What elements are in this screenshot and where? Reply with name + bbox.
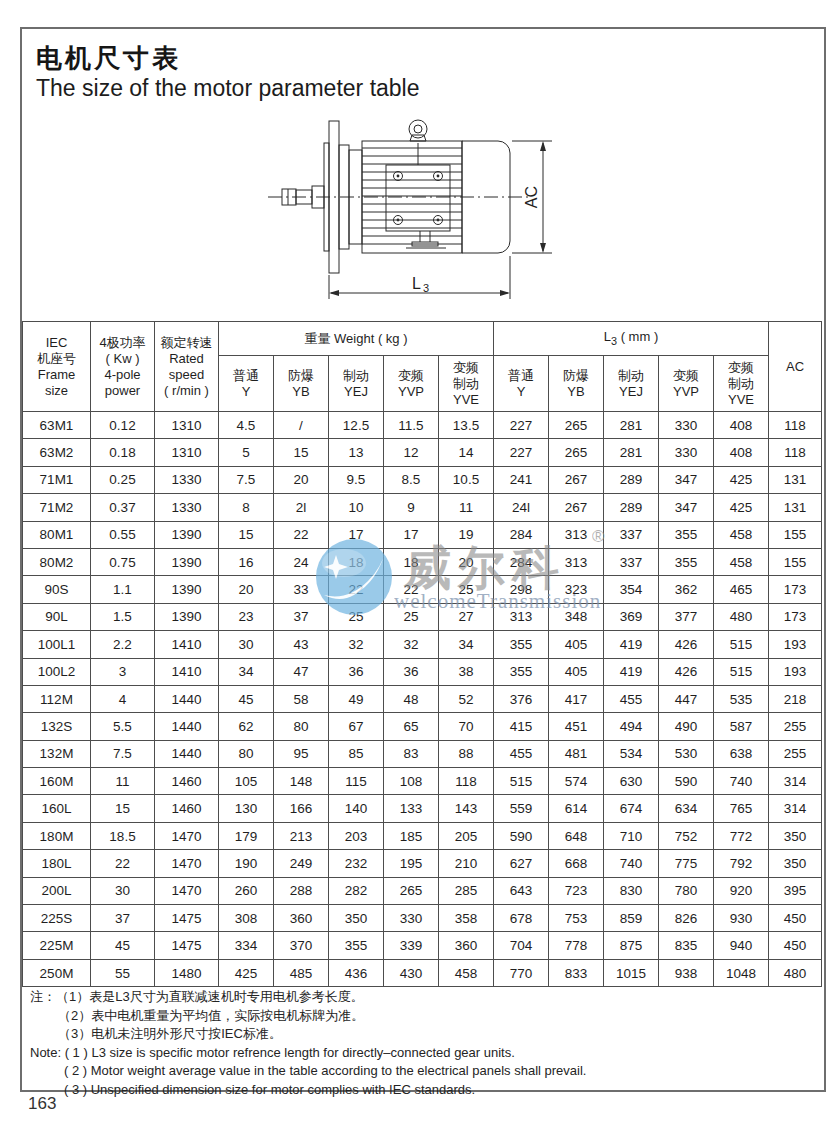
value-cell: 875 <box>604 932 659 959</box>
value-cell: 85 <box>329 740 384 767</box>
value-cell: 1390 <box>155 521 219 548</box>
value-cell: 58 <box>274 685 329 712</box>
frame-size-cell: 225M <box>23 932 91 959</box>
page-title-english: The size of the motor parameter table <box>36 75 420 102</box>
value-cell: 284 <box>494 521 549 548</box>
value-cell: 590 <box>494 822 549 849</box>
value-cell: 347 <box>659 466 714 493</box>
l3-dim-label-main: L <box>412 275 421 292</box>
notes-english: Note: ( 1 ) L3 size is specific motor re… <box>30 1044 810 1100</box>
value-cell: 88 <box>439 740 494 767</box>
value-cell: 1480 <box>155 959 219 986</box>
value-cell: 1470 <box>155 822 219 849</box>
weight-sub-header-yej: 制动 YEJ <box>329 356 384 412</box>
value-cell: 370 <box>274 932 329 959</box>
value-cell: 350 <box>769 850 822 877</box>
value-cell: 308 <box>219 905 274 932</box>
value-cell: 281 <box>604 439 659 466</box>
value-cell: 355 <box>659 548 714 575</box>
value-cell: 105 <box>219 768 274 795</box>
value-cell: 314 <box>769 768 822 795</box>
value-cell: 355 <box>494 631 549 658</box>
value-cell: 13.5 <box>439 412 494 439</box>
value-cell: 20 <box>439 548 494 575</box>
value-cell: 34 <box>219 658 274 685</box>
value-cell: 1330 <box>155 494 219 521</box>
value-cell: 37 <box>91 905 155 932</box>
value-cell: 1015 <box>604 959 659 986</box>
value-cell: 358 <box>439 905 494 932</box>
value-cell: / <box>274 412 329 439</box>
table-row: 80M10.5513901522171719284313337355458155 <box>23 521 822 548</box>
value-cell: 5.5 <box>91 713 155 740</box>
note-zh-line: 注：（1）表是L3尺寸为直联减速机时专用电机参考长度。 <box>30 988 810 1007</box>
value-cell: 265 <box>549 412 604 439</box>
value-cell: 15 <box>91 795 155 822</box>
value-cell: 1470 <box>155 877 219 904</box>
value-cell: 131 <box>769 494 822 521</box>
value-cell: 940 <box>714 932 769 959</box>
value-cell: 80 <box>219 740 274 767</box>
value-cell: 405 <box>549 658 604 685</box>
value-cell: 1330 <box>155 466 219 493</box>
table-row: 225S371475308360350330358678753859826930… <box>23 905 822 932</box>
value-cell: 337 <box>604 521 659 548</box>
value-cell: 3 <box>91 658 155 685</box>
frame-size-cell: 71M2 <box>23 494 91 521</box>
value-cell: 65 <box>384 713 439 740</box>
notes-section: 注：（1）表是L3尺寸为直联减速机时专用电机参考长度。（2）表中电机重量为平均值… <box>30 988 810 1099</box>
value-cell: 22 <box>384 576 439 603</box>
value-cell: 16 <box>219 548 274 575</box>
value-cell: 360 <box>274 905 329 932</box>
frame-size-cell: 100L2 <box>23 658 91 685</box>
frame-size-cell: 63M1 <box>23 412 91 439</box>
value-cell: 1390 <box>155 576 219 603</box>
value-cell: 95 <box>274 740 329 767</box>
value-cell: 49 <box>329 685 384 712</box>
value-cell: 313 <box>494 603 549 630</box>
table-row: 180M18.514701792132031852055906487107527… <box>23 822 822 849</box>
value-cell: 34 <box>439 631 494 658</box>
value-cell: 369 <box>604 603 659 630</box>
terminal-mount-plate <box>386 165 450 231</box>
value-cell: 1048 <box>714 959 769 986</box>
value-cell: 25 <box>439 576 494 603</box>
value-cell: 515 <box>494 768 549 795</box>
value-cell: 559 <box>494 795 549 822</box>
value-cell: 36 <box>329 658 384 685</box>
value-cell: 515 <box>714 631 769 658</box>
value-cell: 339 <box>384 932 439 959</box>
value-cell: 210 <box>439 850 494 877</box>
header-frame-size: IEC 机座号 Frame size <box>23 322 91 412</box>
value-cell: 455 <box>494 740 549 767</box>
value-cell: 20 <box>274 466 329 493</box>
value-cell: 83 <box>384 740 439 767</box>
value-cell: 55 <box>91 959 155 986</box>
value-cell: 131 <box>769 466 822 493</box>
value-cell: 1390 <box>155 603 219 630</box>
l3-dim-label-sub: 3 <box>423 282 429 294</box>
value-cell: 826 <box>659 905 714 932</box>
value-cell: 355 <box>494 658 549 685</box>
value-cell: 27 <box>439 603 494 630</box>
value-cell: 265 <box>549 439 604 466</box>
table-row: 90S1.113902033222225298323354362465173 <box>23 576 822 603</box>
value-cell: 674 <box>604 795 659 822</box>
value-cell: 313 <box>549 548 604 575</box>
value-cell: 360 <box>439 932 494 959</box>
value-cell: 15 <box>274 439 329 466</box>
frame-size-cell: 112M <box>23 685 91 712</box>
value-cell: 80 <box>274 713 329 740</box>
value-cell: 155 <box>769 521 822 548</box>
table-row: 180L221470190249232195210627668740775792… <box>23 850 822 877</box>
value-cell: 289 <box>604 494 659 521</box>
value-cell: 323 <box>549 576 604 603</box>
value-cell: 0.25 <box>91 466 155 493</box>
value-cell: 678 <box>494 905 549 932</box>
table-row: 200L301470260288282265285643723830780920… <box>23 877 822 904</box>
value-cell: 614 <box>549 795 604 822</box>
value-cell: 481 <box>549 740 604 767</box>
value-cell: 140 <box>329 795 384 822</box>
value-cell: 436 <box>329 959 384 986</box>
value-cell: 1470 <box>155 850 219 877</box>
value-cell: 288 <box>274 877 329 904</box>
value-cell: 627 <box>494 850 549 877</box>
value-cell: 62 <box>219 713 274 740</box>
value-cell: 465 <box>714 576 769 603</box>
frame-size-cell: 160L <box>23 795 91 822</box>
value-cell: 334 <box>219 932 274 959</box>
lifting-eye <box>409 120 427 141</box>
value-cell: 15 <box>219 521 274 548</box>
value-cell: 4 <box>91 685 155 712</box>
value-cell: 190 <box>219 850 274 877</box>
motor-outline-svg: AC L 3 <box>254 109 599 319</box>
value-cell: 52 <box>439 685 494 712</box>
table-row: 100L2314103447363638355405419426515193 <box>23 658 822 685</box>
table-body: 63M10.1213104.5/12.511.513.5227265281330… <box>23 412 822 987</box>
value-cell: 2.2 <box>91 631 155 658</box>
value-cell: 634 <box>659 795 714 822</box>
value-cell: 590 <box>659 768 714 795</box>
value-cell: 415 <box>494 713 549 740</box>
l3-sub-header-yve: 变频 制动 YVE <box>714 356 769 412</box>
table-row: 225M451475334370355339360704778875835940… <box>23 932 822 959</box>
value-cell: 241 <box>494 466 549 493</box>
frame-size-cell: 132S <box>23 713 91 740</box>
value-cell: 10 <box>329 494 384 521</box>
value-cell: 45 <box>91 932 155 959</box>
table-row: 160L151460130166140133143559614674634765… <box>23 795 822 822</box>
value-cell: 920 <box>714 877 769 904</box>
value-cell: 70 <box>439 713 494 740</box>
value-cell: 265 <box>384 877 439 904</box>
value-cell: 227 <box>494 412 549 439</box>
frame-size-cell: 180L <box>23 850 91 877</box>
value-cell: 350 <box>769 822 822 849</box>
value-cell: 770 <box>494 959 549 986</box>
ac-dim-label: AC <box>523 186 540 208</box>
value-cell: 859 <box>604 905 659 932</box>
value-cell: 4.5 <box>219 412 274 439</box>
value-cell: 284 <box>494 548 549 575</box>
value-cell: 792 <box>714 850 769 877</box>
value-cell: 166 <box>274 795 329 822</box>
value-cell: 13 <box>329 439 384 466</box>
value-cell: 143 <box>439 795 494 822</box>
value-cell: 37 <box>274 603 329 630</box>
value-cell: 530 <box>659 740 714 767</box>
value-cell: 218 <box>769 685 822 712</box>
table-header: IEC 机座号 Frame size 4极功率 ( Kw ) 4-pole po… <box>23 322 822 412</box>
table-row: 80M20.7513901624181820284313337355458155 <box>23 548 822 575</box>
frame-size-cell: 100L1 <box>23 631 91 658</box>
value-cell: 5 <box>219 439 274 466</box>
frame-size-cell: 63M2 <box>23 439 91 466</box>
value-cell: 833 <box>549 959 604 986</box>
note-en-line: ( 2 ) Motor weight average value in the … <box>30 1062 810 1081</box>
value-cell: 155 <box>769 548 822 575</box>
value-cell: 33 <box>274 576 329 603</box>
weight-sub-header-yvp: 变频 YVP <box>384 356 439 412</box>
value-cell: 267 <box>549 466 604 493</box>
value-cell: 337 <box>604 548 659 575</box>
notes-chinese: 注：（1）表是L3尺寸为直联减速机时专用电机参考长度。（2）表中电机重量为平均值… <box>30 988 810 1044</box>
value-cell: 193 <box>769 658 822 685</box>
value-cell: 405 <box>549 631 604 658</box>
value-cell: 108 <box>384 768 439 795</box>
motor-parameter-table: IEC 机座号 Frame size 4极功率 ( Kw ) 4-pole po… <box>22 321 822 987</box>
frame-size-cell: 80M1 <box>23 521 91 548</box>
table-row: 71M10.2513307.5209.58.510.52412672893474… <box>23 466 822 493</box>
value-cell: 354 <box>604 576 659 603</box>
value-cell: 1475 <box>155 932 219 959</box>
value-cell: 1.5 <box>91 603 155 630</box>
value-cell: 1460 <box>155 795 219 822</box>
value-cell: 285 <box>439 877 494 904</box>
value-cell: 313 <box>549 521 604 548</box>
value-cell: 447 <box>659 685 714 712</box>
value-cell: 260 <box>219 877 274 904</box>
value-cell: 115 <box>329 768 384 795</box>
value-cell: 281 <box>604 412 659 439</box>
page-title-chinese: 电机尺寸表 <box>36 41 181 76</box>
value-cell: 480 <box>769 959 822 986</box>
header-weight-group: 重量 Weight ( kg ) <box>219 322 494 356</box>
dimension-l3: L 3 <box>329 256 510 299</box>
value-cell: 430 <box>384 959 439 986</box>
value-cell: 515 <box>714 658 769 685</box>
value-cell: 24 <box>274 548 329 575</box>
value-cell: 185 <box>384 822 439 849</box>
table-row: 63M10.1213104.5/12.511.513.5227265281330… <box>23 412 822 439</box>
header-l3-group: L3 ( mm ) <box>494 322 769 356</box>
value-cell: 11.5 <box>384 412 439 439</box>
value-cell: 330 <box>659 412 714 439</box>
value-cell: 195 <box>384 850 439 877</box>
value-cell: 485 <box>274 959 329 986</box>
value-cell: 11 <box>91 768 155 795</box>
value-cell: 330 <box>659 439 714 466</box>
value-cell: 780 <box>659 877 714 904</box>
value-cell: 118 <box>769 439 822 466</box>
table-row: 112M414404558494852376417455447535218 <box>23 685 822 712</box>
frame-size-cell: 250M <box>23 959 91 986</box>
value-cell: 1440 <box>155 713 219 740</box>
value-cell: 255 <box>769 740 822 767</box>
value-cell: 2l <box>274 494 329 521</box>
value-cell: 179 <box>219 822 274 849</box>
value-cell: 14 <box>439 439 494 466</box>
weight-sub-header-yve: 变频 制动 YVE <box>439 356 494 412</box>
frame-size-cell: 80M2 <box>23 548 91 575</box>
value-cell: 348 <box>549 603 604 630</box>
frame-size-cell: 180M <box>23 822 91 849</box>
value-cell: 417 <box>549 685 604 712</box>
value-cell: 376 <box>494 685 549 712</box>
note-en-line: ( 3 ) Unspecified dimension size for mot… <box>30 1081 810 1100</box>
value-cell: 118 <box>769 412 822 439</box>
value-cell: 30 <box>91 877 155 904</box>
value-cell: 1440 <box>155 685 219 712</box>
value-cell: 535 <box>714 685 769 712</box>
value-cell: 0.37 <box>91 494 155 521</box>
value-cell: 22 <box>329 576 384 603</box>
value-cell: 1410 <box>155 631 219 658</box>
value-cell: 1.1 <box>91 576 155 603</box>
frame-size-cell: 90L <box>23 603 91 630</box>
value-cell: 32 <box>329 631 384 658</box>
note-zh-line: （2）表中电机重量为平均值，实际按电机标牌为准。 <box>30 1007 810 1026</box>
value-cell: 426 <box>659 658 714 685</box>
value-cell: 347 <box>659 494 714 521</box>
value-cell: 419 <box>604 658 659 685</box>
weight-sub-header-y: 普通 Y <box>219 356 274 412</box>
value-cell: 12.5 <box>329 412 384 439</box>
value-cell: 630 <box>604 768 659 795</box>
value-cell: 450 <box>769 932 822 959</box>
value-cell: 47 <box>274 658 329 685</box>
value-cell: 18 <box>329 548 384 575</box>
value-cell: 130 <box>219 795 274 822</box>
l3-sub-header-yvp: 变频 YVP <box>659 356 714 412</box>
table-row: 160M111460105148115108118515574630590740… <box>23 768 822 795</box>
value-cell: 118 <box>439 768 494 795</box>
value-cell: 480 <box>714 603 769 630</box>
value-cell: 753 <box>549 905 604 932</box>
value-cell: 830 <box>604 877 659 904</box>
value-cell: 203 <box>329 822 384 849</box>
table-row: 132M7.514408095858388455481534530638255 <box>23 740 822 767</box>
value-cell: 173 <box>769 576 822 603</box>
motor-dimension-drawing: AC L 3 <box>254 109 599 319</box>
value-cell: 45 <box>219 685 274 712</box>
value-cell: 9 <box>384 494 439 521</box>
note-zh-line: （3）电机未注明外形尺寸按IEC标准。 <box>30 1025 810 1044</box>
value-cell: 1440 <box>155 740 219 767</box>
value-cell: 835 <box>659 932 714 959</box>
value-cell: 249 <box>274 850 329 877</box>
value-cell: 25 <box>329 603 384 630</box>
value-cell: 205 <box>439 822 494 849</box>
cooling-fins <box>362 148 462 244</box>
value-cell: 18.5 <box>91 822 155 849</box>
value-cell: 425 <box>714 466 769 493</box>
value-cell: 17 <box>329 521 384 548</box>
value-cell: 778 <box>549 932 604 959</box>
value-cell: 1460 <box>155 768 219 795</box>
value-cell: 1475 <box>155 905 219 932</box>
value-cell: 377 <box>659 603 714 630</box>
value-cell: 362 <box>659 576 714 603</box>
value-cell: 668 <box>549 850 604 877</box>
value-cell: 752 <box>659 822 714 849</box>
value-cell: 765 <box>714 795 769 822</box>
value-cell: 458 <box>439 959 494 986</box>
value-cell: 451 <box>549 713 604 740</box>
value-cell: 0.12 <box>91 412 155 439</box>
value-cell: 534 <box>604 740 659 767</box>
value-cell: 355 <box>659 521 714 548</box>
value-cell: 458 <box>714 521 769 548</box>
header-power: 4极功率 ( Kw ) 4-pole power <box>91 322 155 412</box>
value-cell: 25 <box>384 603 439 630</box>
value-cell: 213 <box>274 822 329 849</box>
value-cell: 17 <box>384 521 439 548</box>
value-cell: 426 <box>659 631 714 658</box>
value-cell: 43 <box>274 631 329 658</box>
mount-bolts <box>394 172 443 225</box>
value-cell: 227 <box>494 439 549 466</box>
value-cell: 458 <box>714 548 769 575</box>
value-cell: 395 <box>769 877 822 904</box>
value-cell: 710 <box>604 822 659 849</box>
table-row: 100L12.214103043323234355405419426515193 <box>23 631 822 658</box>
value-cell: 723 <box>549 877 604 904</box>
value-cell: 930 <box>714 905 769 932</box>
value-cell: 425 <box>714 494 769 521</box>
table-row: 90L1.513902337252527313348369377480173 <box>23 603 822 630</box>
value-cell: 587 <box>714 713 769 740</box>
value-cell: 408 <box>714 412 769 439</box>
value-cell: 289 <box>604 466 659 493</box>
value-cell: 173 <box>769 603 822 630</box>
value-cell: 48 <box>384 685 439 712</box>
weight-sub-header-yb: 防爆 YB <box>274 356 329 412</box>
value-cell: 20 <box>219 576 274 603</box>
l3-sub-header-y: 普通 Y <box>494 356 549 412</box>
value-cell: 638 <box>714 740 769 767</box>
bottom-bracket <box>406 231 446 248</box>
value-cell: 740 <box>714 768 769 795</box>
l3-header-unit: ( mm ) <box>617 329 658 344</box>
value-cell: 425 <box>219 959 274 986</box>
l3-sub-header-yb: 防爆 YB <box>549 356 604 412</box>
value-cell: 32 <box>384 631 439 658</box>
value-cell: 1310 <box>155 439 219 466</box>
value-cell: 408 <box>714 439 769 466</box>
note-en-line: Note: ( 1 ) L3 size is specific motor re… <box>30 1044 810 1063</box>
value-cell: 255 <box>769 713 822 740</box>
frame-size-cell: 90S <box>23 576 91 603</box>
value-cell: 8.5 <box>384 466 439 493</box>
value-cell: 330 <box>384 905 439 932</box>
value-cell: 772 <box>714 822 769 849</box>
